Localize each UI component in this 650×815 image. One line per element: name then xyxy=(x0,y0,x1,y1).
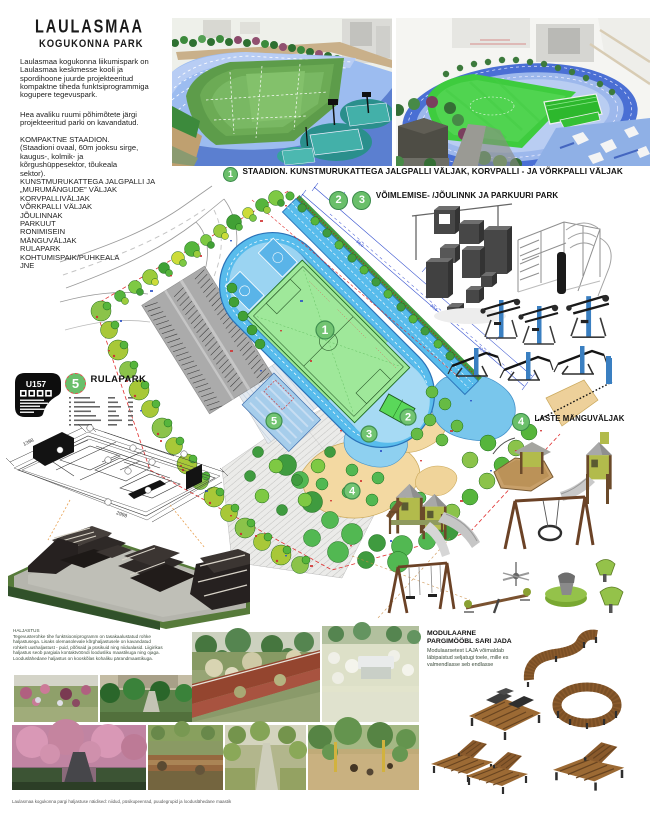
svg-text:4: 4 xyxy=(349,486,356,498)
svg-text:2998: 2998 xyxy=(115,510,128,519)
svg-text:3: 3 xyxy=(366,429,372,441)
svg-text:5: 5 xyxy=(271,416,277,428)
svg-text:1: 1 xyxy=(322,323,329,337)
svg-text:U157: U157 xyxy=(26,379,47,389)
svg-text:2: 2 xyxy=(405,412,411,424)
